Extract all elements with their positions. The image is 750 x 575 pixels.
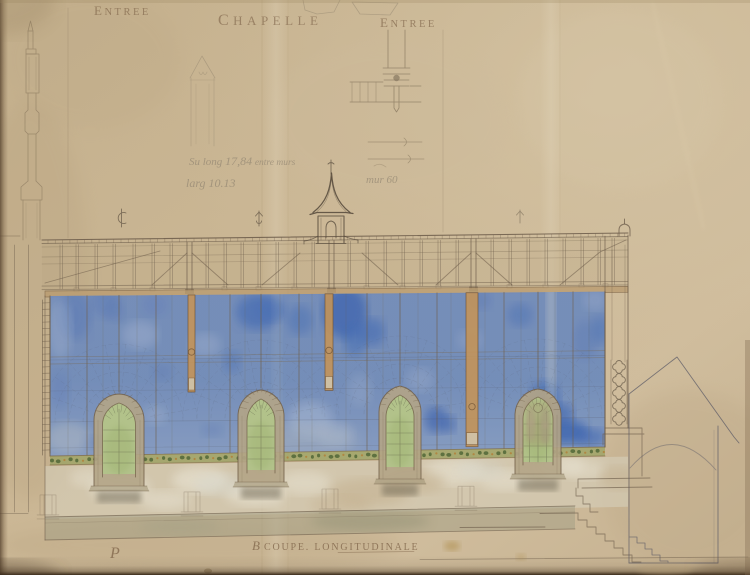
svg-text:B: B bbox=[252, 538, 260, 553]
svg-text:mur 60: mur 60 bbox=[366, 174, 398, 186]
svg-text:larg 10.13: larg 10.13 bbox=[186, 176, 236, 190]
svg-text:COUPE. LONGITUDINALE: COUPE. LONGITUDINALE bbox=[264, 542, 419, 553]
svg-text:CHAPELLE: CHAPELLE bbox=[218, 12, 322, 29]
